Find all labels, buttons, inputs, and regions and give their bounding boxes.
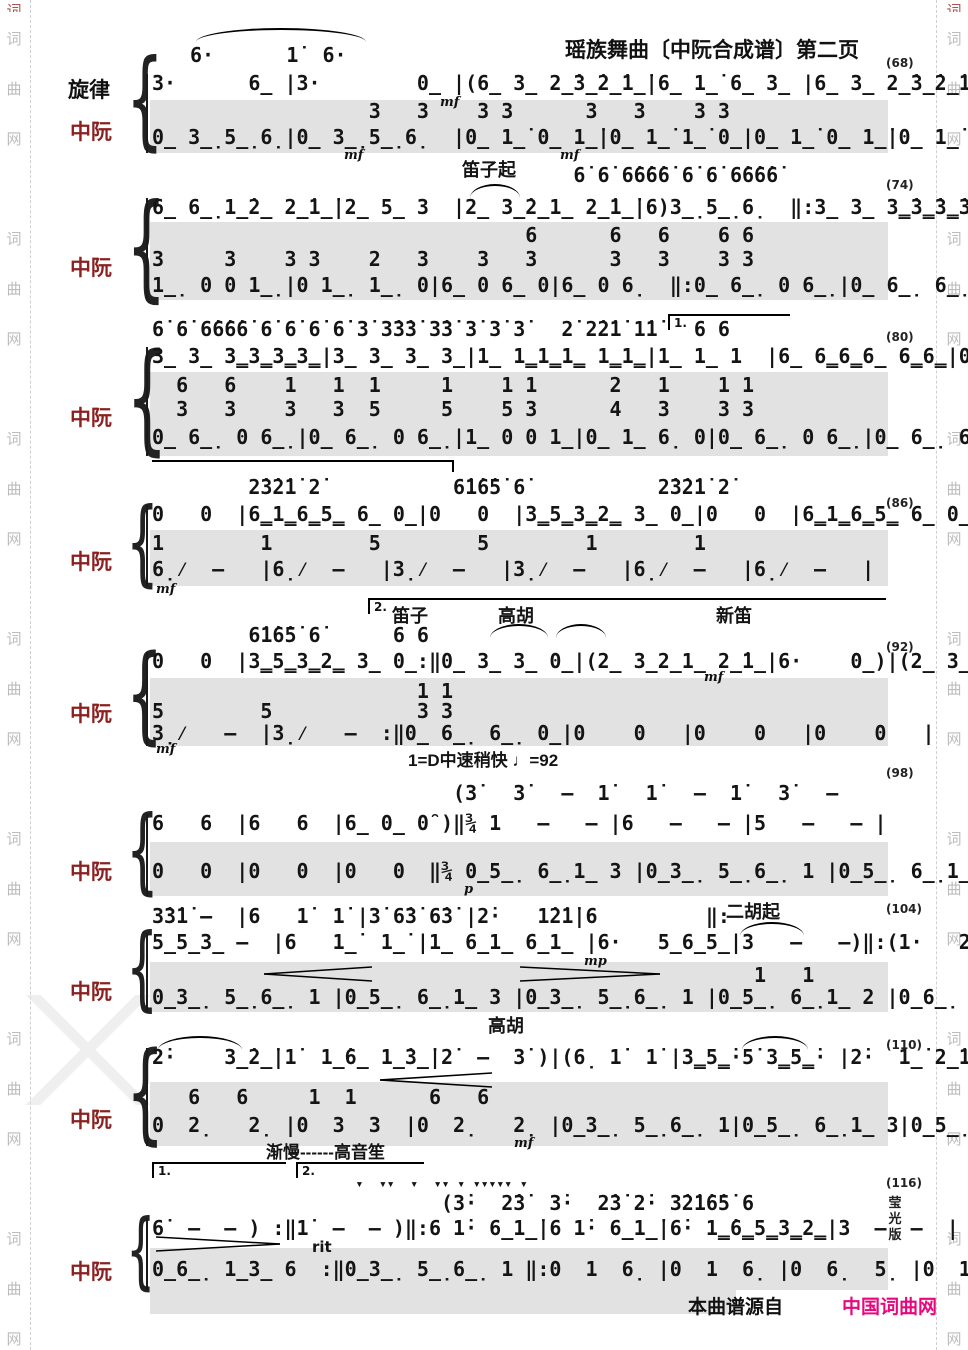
s1-mf-zhongruan-1: mf bbox=[344, 148, 363, 163]
left-corner-watermark-fragment: 词 bbox=[2, 0, 26, 12]
s6-melody-line: 6 6 |6 6 |6̲ 0̲ 0̑ )‖¾ 1 – – |6 – – |5 –… bbox=[152, 812, 887, 834]
sheet-music-page: 词 词 词 曲 网 词 曲 网 词 曲 网 词 曲 网 词 曲 网 词 曲 网 … bbox=[0, 0, 968, 1350]
s8-mf-zhongruan: mf bbox=[514, 1136, 533, 1151]
s2-measure-ref: (74) bbox=[886, 178, 914, 192]
system-startline-6 bbox=[146, 814, 148, 896]
zhongruan-label-8: 中阮 bbox=[70, 1104, 112, 1134]
s1-melody-upper-voice: 6· 1̇ 6· bbox=[190, 44, 347, 66]
s7-zhongruan-chord-row: 1 1 bbox=[152, 964, 814, 986]
s5-melody-upper-voice: 6̇1̇6̇5̇ 6̇ 6 6 bbox=[152, 624, 429, 646]
zhongruan-label-3: 中阮 bbox=[70, 402, 112, 432]
s5-slur-arc-2 bbox=[556, 624, 606, 638]
s5-zhongruan-line: 3̣⁄ – |3̣⁄ – :‖0̲ 6̲̣ 6̲̣ 0̲|0 0 |0 0 |0… bbox=[152, 722, 935, 744]
zhongruan-label-9: 中阮 bbox=[70, 1256, 112, 1286]
s9-volta-2-bracket: 2. bbox=[296, 1162, 424, 1178]
right-corner-watermark-fragment: 词 bbox=[942, 0, 966, 12]
s5-mf-melody: mf bbox=[704, 670, 723, 685]
s3-melody-upper-voice: 6̇ 6̇ 6̇6̇6̇6̇ 6̇ 6̇ 6̇ 6̇ 3̇ 3̇3̇3̇ 3̇3… bbox=[152, 318, 730, 340]
zhongruan-label-6: 中阮 bbox=[70, 856, 112, 886]
edition-label: 莹 光 版 bbox=[886, 1196, 904, 1244]
s1-mf-melody: mf bbox=[440, 95, 459, 110]
s7-zhongruan-line: 0̲3̲̣ 5̲̣6̲̣ 1 |0̲5̲̣ 6̲̣1̲ 3 |0̲3̲̣ 5̲̣… bbox=[152, 986, 968, 1008]
s4-melody-upper-voice: 2̇3̇2̇1̇ 2̇ 6̇1̇6̇5̇ 6̇ 2̇3̇2̇1̇ 2̇ bbox=[152, 476, 730, 498]
s5-measure-ref: (92) bbox=[886, 640, 914, 654]
s8-measure-ref: (110) bbox=[886, 1038, 922, 1052]
system-startline-7 bbox=[146, 933, 148, 1012]
s6-p-zhongruan: p bbox=[464, 882, 473, 897]
source-prefix: 本曲谱源自 bbox=[688, 1292, 783, 1319]
system-startline-2 bbox=[146, 198, 148, 300]
s3-zhongruan-chord-row-high: 6 6 1 1 1 1 1 1 2 1 1 1 bbox=[152, 374, 754, 396]
s3-melody-line: 3̲ 3̲ 3̳3̳3̳3̳|3̲ 3̲ 3̲ 3̲|1̲ 1̳1̳1̳ 1̳1… bbox=[152, 345, 968, 367]
s1-slur-arc bbox=[196, 28, 366, 42]
s4-mf-zhongruan: mf bbox=[156, 582, 175, 597]
edition-char-2: 光 bbox=[886, 1212, 904, 1228]
zhongruan-label-4: 中阮 bbox=[70, 546, 112, 576]
s8-ritard-sheng-label: 渐慢------高音笙 bbox=[266, 1138, 385, 1163]
s1-melody-line: 3· 6̲ |3· 0̲ |(6̲ 3̲ 2̲̇3̲̇2̲̇1̲̇|6̲ 1̲̇… bbox=[152, 72, 968, 94]
s7-melody-upper-voice: 3̇3̇1̇ – |6 1̇ 1̇ |3̇ 6̇3̇ 6̇3̇ |2̇· 1̇2… bbox=[152, 905, 730, 927]
s8-melody-line: 2̇· 3̲̇2̲̇|1̇ 1̲̇6̲ 1̲̇3̲̇|2̇ – 3̇ )|(6̣… bbox=[152, 1046, 968, 1068]
s4-measure-ref: (86) bbox=[886, 496, 914, 510]
s3-volta-1-bracket: 1. bbox=[668, 314, 790, 330]
s7-melody-line: 5̲5̲3̲ – |6 1̲̇ 1̲̇ |1̲ 6̲1̲ 6̲1̲ |6· 5̲… bbox=[152, 931, 968, 953]
s7-mp-melody: mp bbox=[584, 954, 607, 969]
s5-melody-line: 0 0 |3̳5̳3̳2̳ 3̲ 0̲:‖0̲ 3̲ 3̲ 0̲|(2̲ 3̲2… bbox=[152, 650, 968, 672]
system-startline-5 bbox=[146, 652, 148, 746]
left-border-dashed-line bbox=[30, 0, 31, 1350]
s8-zhongruan-chord-row: 6 6 1 1 6 6 bbox=[152, 1086, 489, 1108]
edition-char-3: 版 bbox=[886, 1228, 904, 1244]
s9-staccato-marks: ▾ ▾▾ ▾ ▾▾ ▾ ▾▾▾▾▾ ▾ bbox=[152, 1178, 528, 1192]
s2-zhongruan-chord-row-high: 6 6 6 6 6 bbox=[152, 224, 754, 246]
s8-zhongruan-line: 0 2̣ 2̣ |0 3 3 |0 2̣ 2̣ |0̲3̲̣ 5̲̣6̲̣ 1|… bbox=[152, 1114, 968, 1136]
melody-part-label: 旋律 bbox=[68, 74, 110, 104]
s5-zhongruan-chord-row: 5 5 3 3 bbox=[152, 700, 453, 722]
s5-xindi-label: 新笛 bbox=[716, 602, 752, 628]
s5-mf-zhongruan: mf bbox=[156, 742, 175, 757]
s3-zhongruan-line: 0̲ 6̲̣ 0 6̲̣|0̲ 6̲̣ 0 6̲̣|1̲ 0 0 1̲|0̲ 1… bbox=[152, 426, 968, 448]
system-startline-9 bbox=[146, 1219, 148, 1290]
s6-melody-upper-voice: (3̇ 3̇ – 1̇ 1̇ – 1̇ 3̇ – bbox=[152, 782, 838, 804]
s6-tempo-marking: 1=D中速稍快 ♩=92 bbox=[408, 746, 558, 771]
s4-zhongruan-chord-row: 1 1 5 5 1 1 bbox=[152, 532, 706, 554]
page-title: 瑶族舞曲〔中阮合成谱〕第二页 bbox=[565, 34, 859, 64]
s9-melody-upper-voice: (3̇· 2̇3̇ 3̇· 2̇3̇ 2̇· 3̇2̇1̇6̇5̇ 6 bbox=[152, 1192, 754, 1214]
edition-char-1: 莹 bbox=[886, 1196, 904, 1212]
s9-measure-ref: (116) bbox=[886, 1176, 922, 1190]
system-startline-1 bbox=[146, 74, 148, 153]
s2-melody-line: 6̲ 6̲̣1̲̇2̲ 2̲̇1̲̇|2̲ 5̲ 3 |2̲ 3̲̇2̲1̲ 2… bbox=[152, 196, 968, 218]
s9-zhongruan-line: 0̲6̲̣ 1̲3̲ 6 :‖0̲3̲̣ 5̲̣6̲̣ 1 ‖:0 1 6̣ |… bbox=[152, 1258, 968, 1280]
s2-zhongruan-line: 1̲̣ 0 0 1̲̣|0 1̲̣ 1̲̣ 0|6̲ 0 6̲ 0|6̲ 0 6… bbox=[152, 274, 968, 296]
zhongruan-label-5: 中阮 bbox=[70, 698, 112, 728]
s2-melody-upper-voice: 6̇ 6̇ 6̇6̇6̇6̇ 6̇ 6̇ 6̇6̇6̇6̇ bbox=[152, 164, 778, 186]
s6-zhongruan-line: 0 0 |0 0 |0 0 ‖¾ 0̲5̲̣ 6̲̣1̲ 3 |0̲3̲̣ 5̲… bbox=[152, 860, 968, 882]
s6-measure-ref: (98) bbox=[886, 766, 914, 780]
zhongruan-label-2: 中阮 bbox=[70, 252, 112, 282]
s3-zhongruan-chord-row: 3 3 3 3 5 5 5 3 4 3 3 3 bbox=[152, 398, 754, 420]
s1-zhongruan-line: 0̲ 3̲̣5̲̣6̣|0̲ 3̲̣5̲̣6̣ |0̲ 1̲̇ 0̲ 1̲̇|0… bbox=[152, 126, 968, 148]
s7-erhu-qi-label: 二胡起 bbox=[726, 898, 780, 924]
system-startline-3 bbox=[146, 347, 148, 456]
s4-melody-line: 0 0 |6̳1̳6̳5̳ 6̲ 0̲|0 0 |3̳5̳3̳2̳ 3̲ 0̲|… bbox=[152, 503, 968, 525]
s1-mf-zhongruan-2: mf bbox=[560, 148, 579, 163]
s4-phrase-bracket bbox=[152, 460, 454, 472]
s9-volta-1-bracket: 1. bbox=[152, 1162, 286, 1178]
s9-decrescendo-hairpin bbox=[156, 1236, 280, 1252]
zhongruan-band-9-ext bbox=[150, 1290, 736, 1314]
s1-measure-ref: (68) bbox=[886, 56, 914, 70]
system-brace-9: { bbox=[126, 1210, 155, 1290]
s4-zhongruan-line: 6̣⁄ – |6̣⁄ – |3̣⁄ – |3̣⁄ – |6̣⁄ – |6̣⁄ –… bbox=[152, 558, 874, 580]
s2-zhongruan-chord-row: 3 3 3 3 2 3 3 3 3 3 3 3 bbox=[152, 248, 754, 270]
source-site-link[interactable]: 中国词曲网 bbox=[842, 1292, 937, 1319]
s8-gaohu-label: 高胡 bbox=[488, 1012, 524, 1038]
s9-rit-marking: rit bbox=[312, 1238, 332, 1256]
system-startline-8 bbox=[146, 1048, 148, 1146]
zhongruan-label-7: 中阮 bbox=[70, 976, 112, 1006]
s5-volta-2-bracket: 2. bbox=[368, 598, 886, 614]
system-startline-4 bbox=[146, 505, 148, 586]
left-watermark-column: 词 曲 网 词 曲 网 词 曲 网 词 曲 网 词 曲 网 词 曲 网 词 曲 … bbox=[2, 14, 26, 1350]
s3-measure-ref: (80) bbox=[886, 330, 914, 344]
s8-crescendo-hairpin bbox=[380, 1072, 492, 1088]
s7-measure-ref: (104) bbox=[886, 902, 922, 916]
zhongruan-label-1: 中阮 bbox=[70, 116, 112, 146]
s7-crescendo-hairpin bbox=[264, 966, 372, 982]
